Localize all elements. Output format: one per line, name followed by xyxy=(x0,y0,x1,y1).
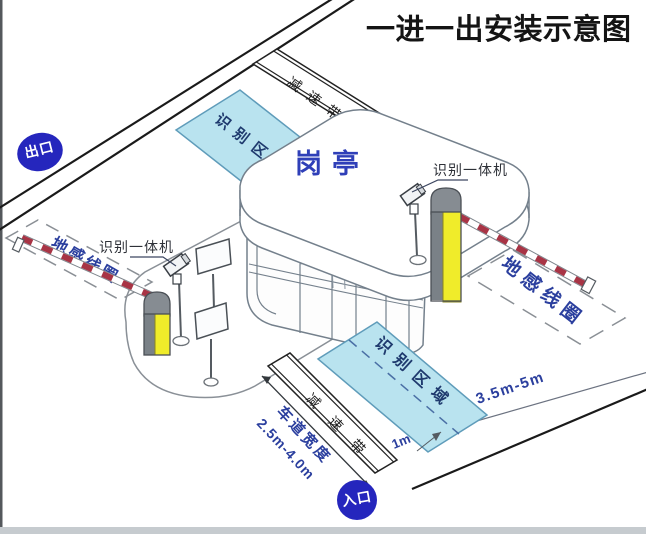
installation-diagram: 一进一出安装示意图 减速带 识别区域 xyxy=(0,0,646,534)
camera-base xyxy=(173,337,189,346)
diagram-canvas: 一进一出安装示意图 减速带 识别区域 xyxy=(0,0,646,534)
booth-label: 岗亭 xyxy=(295,148,369,179)
gate-front xyxy=(443,212,461,302)
barrier-gate-right xyxy=(431,188,461,302)
diagram-title: 一进一出安装示意图 xyxy=(366,12,632,46)
gate-cap xyxy=(144,292,170,316)
camera-bracket xyxy=(410,204,418,214)
entrance-badge: 入口 xyxy=(337,480,377,520)
gate-front xyxy=(155,314,170,355)
camera-label-right: 识别一体机 xyxy=(433,162,508,178)
barrier-gate-left xyxy=(144,292,170,355)
gate-cap xyxy=(431,188,461,214)
left-edge-strip xyxy=(0,0,3,534)
camera-label-left: 识别一体机 xyxy=(99,239,174,255)
sign-pole xyxy=(213,274,214,309)
camera-base xyxy=(410,256,426,265)
sign-base xyxy=(204,378,218,386)
camera-bracket xyxy=(173,274,181,284)
bottom-edge-strip xyxy=(0,527,646,534)
